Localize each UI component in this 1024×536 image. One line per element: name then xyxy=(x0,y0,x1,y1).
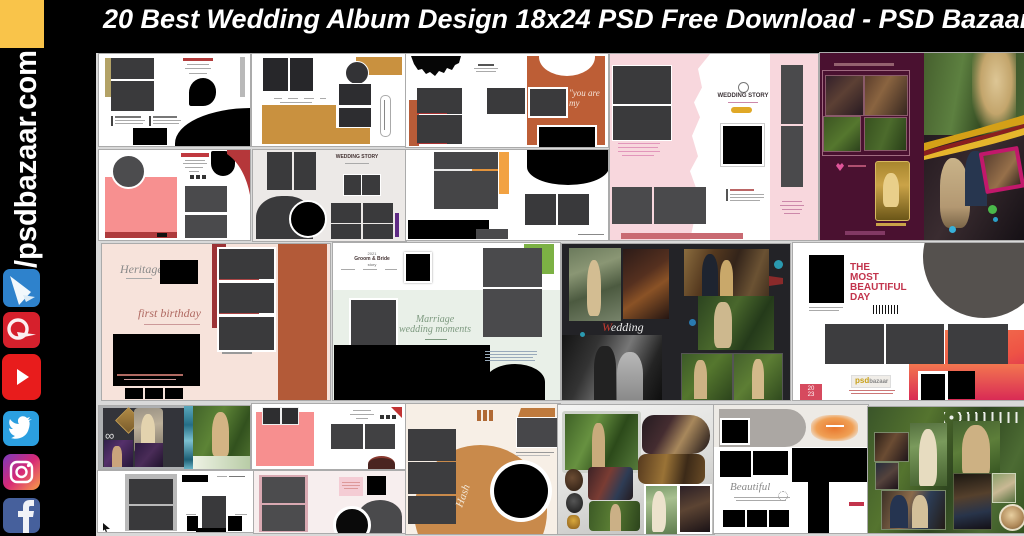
svg-text:/psdbazaar.com: /psdbazaar.com xyxy=(8,50,43,268)
